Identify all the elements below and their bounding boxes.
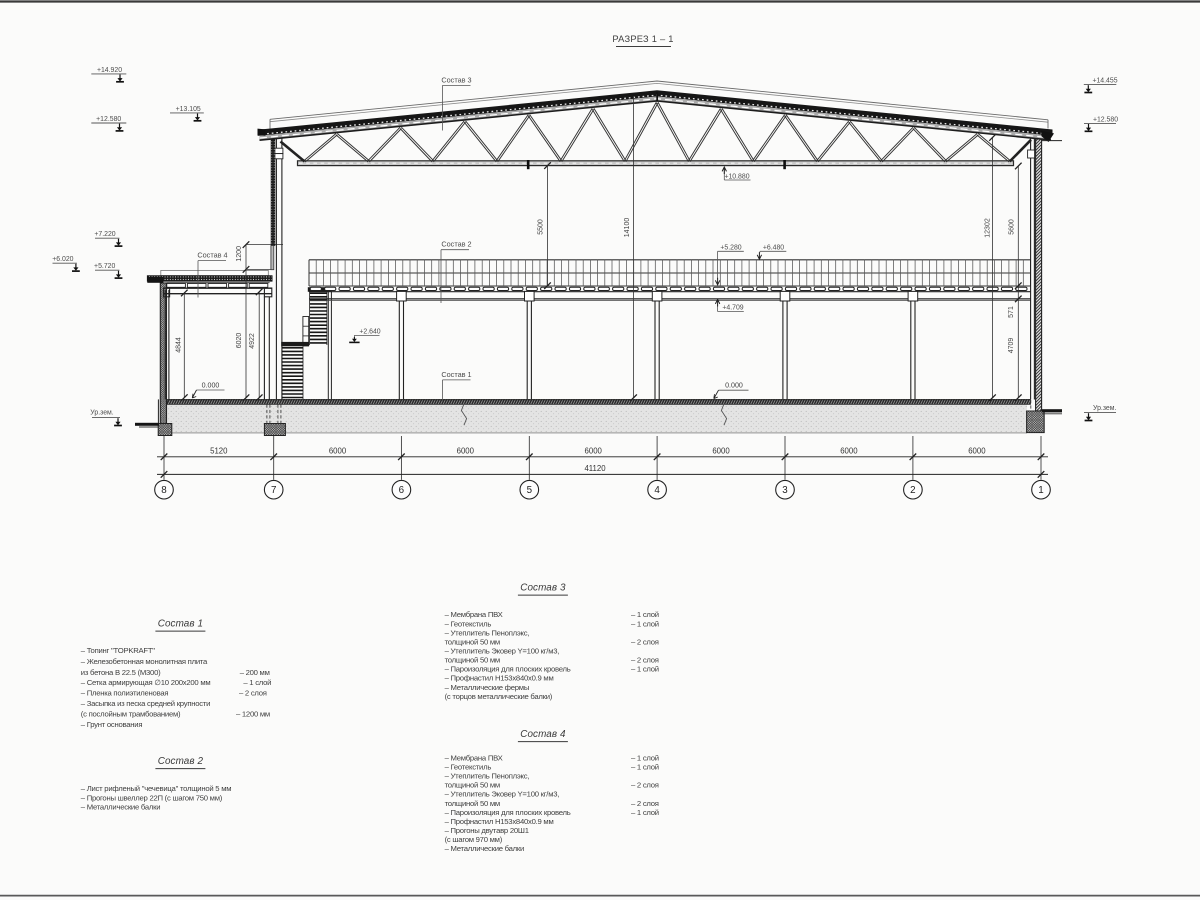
svg-text:5600: 5600 xyxy=(1009,219,1016,235)
svg-text:(с шагом 970 мм): (с шагом 970 мм) xyxy=(445,835,503,844)
svg-text:14100: 14100 xyxy=(624,218,631,238)
svg-text:+6.480: +6.480 xyxy=(763,244,784,251)
svg-text:4: 4 xyxy=(654,485,660,496)
svg-text:5500: 5500 xyxy=(538,219,545,235)
svg-text:– Металлические фермы: – Металлические фермы xyxy=(445,683,530,692)
svg-text:Ур.зем.: Ур.зем. xyxy=(1093,405,1116,412)
svg-text:толщиной 50 мм: толщиной 50 мм xyxy=(445,799,500,808)
svg-text:– 1200 мм: – 1200 мм xyxy=(236,710,270,719)
svg-text:– Железобетонная монолитная п: – Железобетонная монолитная плита xyxy=(81,657,208,666)
svg-text:Состав 3: Состав 3 xyxy=(520,583,566,594)
svg-text:– Профнастил Н153х840х0.9 мм: – Профнастил Н153х840х0.9 мм xyxy=(445,674,554,683)
svg-text:– 2 слоя: – 2 слоя xyxy=(631,637,659,646)
svg-text:– Лист рифленый "чечевица" тол: – Лист рифленый "чечевица" толщиной 5 мм xyxy=(81,784,231,793)
svg-text:+5.280: +5.280 xyxy=(720,244,741,251)
svg-text:+14.455: +14.455 xyxy=(1092,78,1117,85)
svg-text:– Топинг "TOPKRAFT": – Топинг "TOPKRAFT" xyxy=(81,646,156,655)
svg-text:Ур.зем.: Ур.зем. xyxy=(90,410,113,417)
svg-text:6: 6 xyxy=(399,485,405,496)
svg-text:4844: 4844 xyxy=(176,337,183,353)
svg-text:– Металлические балки: – Металлические балки xyxy=(445,844,524,853)
svg-text:толщиной 50 мм: толщиной 50 мм xyxy=(445,781,500,790)
svg-text:+4.709: +4.709 xyxy=(722,305,743,312)
svg-text:+14.920: +14.920 xyxy=(97,67,122,74)
svg-text:7: 7 xyxy=(271,485,276,496)
svg-text:1200: 1200 xyxy=(236,246,243,262)
svg-text:– 200 мм: – 200 мм xyxy=(240,668,270,677)
svg-text:– Утеплитель Эковер Y=100 кг/м: – Утеплитель Эковер Y=100 кг/м3, xyxy=(445,790,560,799)
svg-text:6000: 6000 xyxy=(329,446,347,455)
svg-text:(с послойным трамбованием): (с послойным трамбованием) xyxy=(81,710,181,719)
svg-text:– 2 слоя: – 2 слоя xyxy=(631,799,659,808)
svg-text:12302: 12302 xyxy=(985,218,992,238)
svg-text:– 1 слой: – 1 слой xyxy=(631,763,659,772)
svg-text:– Сетка армирующая ∅10 200х200: – Сетка армирующая ∅10 200х200 мм xyxy=(81,678,211,687)
svg-text:Состав 2: Состав 2 xyxy=(441,240,471,249)
svg-text:41120: 41120 xyxy=(584,464,606,473)
svg-text:2: 2 xyxy=(910,485,915,496)
svg-text:– 2 слоя: – 2 слоя xyxy=(239,689,267,698)
svg-text:5120: 5120 xyxy=(210,446,228,455)
svg-text:– Утеплитель Пеноплэкс,: – Утеплитель Пеноплэкс, xyxy=(445,772,530,781)
svg-text:– Пароизоляция для плоских кро: – Пароизоляция для плоских кровель xyxy=(445,808,571,817)
svg-text:– Прогоны швеллер 22П (с шагом: – Прогоны швеллер 22П (с шагом 750 мм) xyxy=(81,793,223,802)
svg-text:1: 1 xyxy=(1038,485,1043,496)
svg-text:6000: 6000 xyxy=(840,446,858,455)
svg-text:– Геотекстиль: – Геотекстиль xyxy=(445,619,492,628)
svg-text:толщиной 50 мм: толщиной 50 мм xyxy=(445,656,500,665)
svg-text:– 1 слой: – 1 слой xyxy=(631,754,659,763)
svg-text:– Профнастил Н153х840х0.9 мм: – Профнастил Н153х840х0.9 мм xyxy=(445,817,554,826)
svg-text:Состав 3: Состав 3 xyxy=(441,76,471,85)
svg-text:4922: 4922 xyxy=(249,333,256,349)
svg-text:+7.220: +7.220 xyxy=(94,231,115,238)
svg-text:– Мембрана ПВХ: – Мембрана ПВХ xyxy=(445,754,503,763)
svg-text:3: 3 xyxy=(782,485,788,496)
svg-text:толщиной 50 мм: толщиной 50 мм xyxy=(445,637,500,646)
svg-text:+2.640: +2.640 xyxy=(359,328,380,335)
svg-text:(с торцов металлические балки): (с торцов металлические балки) xyxy=(445,692,553,701)
svg-text:Состав 4: Состав 4 xyxy=(197,251,227,260)
svg-text:– Пленка полиэтиленовая: – Пленка полиэтиленовая xyxy=(81,689,169,698)
svg-text:– 1 слой: – 1 слой xyxy=(631,610,659,619)
svg-text:из бетона В 22.5 (М300): из бетона В 22.5 (М300) xyxy=(81,668,161,677)
svg-text:– 1 слой: – 1 слой xyxy=(631,619,659,628)
svg-text:4709: 4709 xyxy=(1008,338,1015,354)
svg-text:571: 571 xyxy=(1008,306,1015,318)
svg-text:– Грунт основания: – Грунт основания xyxy=(81,720,143,729)
svg-text:– Геотекстиль: – Геотекстиль xyxy=(445,763,492,772)
svg-text:0.000: 0.000 xyxy=(725,382,743,390)
svg-text:Состав 1: Состав 1 xyxy=(158,619,203,630)
svg-text:Состав 4: Состав 4 xyxy=(520,729,566,740)
svg-text:+5.720: +5.720 xyxy=(94,263,115,270)
svg-text:– 2 слоя: – 2 слоя xyxy=(631,656,659,665)
svg-text:– 1 слой: – 1 слой xyxy=(631,665,659,674)
svg-text:+12.580: +12.580 xyxy=(96,116,121,123)
svg-text:Состав 1: Состав 1 xyxy=(441,370,471,379)
svg-text:– Утеплитель Эковер Y=100 кг/м: – Утеплитель Эковер Y=100 кг/м3, xyxy=(445,647,560,656)
svg-text:6000: 6000 xyxy=(457,446,475,455)
svg-text:6000: 6000 xyxy=(968,446,986,455)
svg-text:Состав 2: Состав 2 xyxy=(158,756,204,767)
svg-text:– Металлические балки: – Металлические балки xyxy=(81,803,161,812)
svg-text:– 1 слой: – 1 слой xyxy=(243,678,271,687)
svg-text:6000: 6000 xyxy=(585,446,603,455)
svg-text:6020: 6020 xyxy=(236,333,243,349)
svg-text:+13.105: +13.105 xyxy=(176,106,201,113)
svg-text:0.000: 0.000 xyxy=(202,381,220,389)
svg-text:– 2 слоя: – 2 слоя xyxy=(631,781,659,790)
svg-text:5: 5 xyxy=(527,485,533,496)
svg-text:– Мембрана ПВХ: – Мембрана ПВХ xyxy=(445,610,503,619)
svg-text:– Утеплитель Пеноплэкс,: – Утеплитель Пеноплэкс, xyxy=(445,628,530,637)
svg-text:– 1 слой: – 1 слой xyxy=(631,808,659,817)
svg-text:– Прогоны двутавр 20Ш1: – Прогоны двутавр 20Ш1 xyxy=(445,826,529,835)
svg-text:+6.020: +6.020 xyxy=(52,256,73,263)
svg-text:– Пароизоляция для плоских кро: – Пароизоляция для плоских кровель xyxy=(445,665,571,674)
svg-text:6000: 6000 xyxy=(712,446,730,455)
svg-text:+12.580: +12.580 xyxy=(1093,116,1118,123)
svg-text:+10.880: +10.880 xyxy=(724,173,749,180)
svg-text:РАЗРЕЗ 1 – 1: РАЗРЕЗ 1 – 1 xyxy=(612,34,673,44)
svg-text:– Засыпка из песка средней кру: – Засыпка из песка средней крупности xyxy=(81,699,210,708)
svg-text:8: 8 xyxy=(161,485,167,496)
